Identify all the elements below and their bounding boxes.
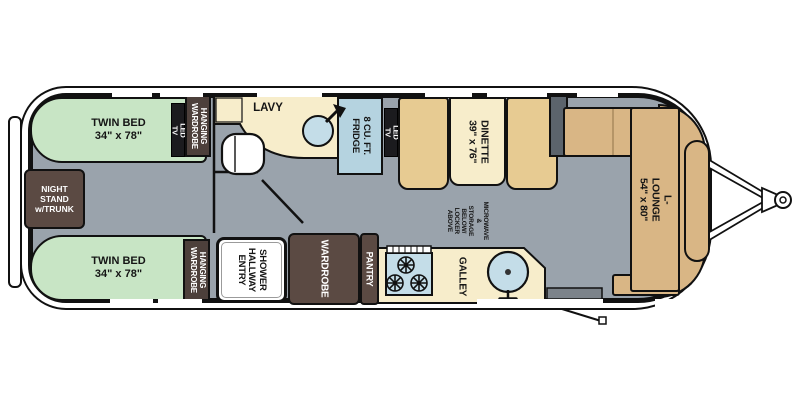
window-top-1	[112, 88, 152, 97]
galley-sink-icon	[488, 252, 528, 299]
entry-door-opening	[543, 299, 603, 308]
stove-burners-icon	[387, 246, 431, 291]
lavy-cabinet-seam	[216, 98, 242, 122]
window-bottom-4	[655, 299, 688, 308]
window-bottom-1	[110, 299, 153, 308]
window-top-6	[577, 88, 618, 97]
floor-plan: TWIN BED 34" x 78" TWIN BED 34" x 78" NI…	[0, 0, 800, 400]
window-top-4	[425, 88, 472, 97]
window-top-2	[160, 88, 203, 97]
window-bottom-2	[158, 299, 202, 308]
detail-vector-layer	[0, 0, 800, 400]
window-top-3	[257, 88, 322, 97]
window-top-5	[487, 88, 547, 97]
lavy-sink-icon	[303, 104, 346, 146]
window-bottom-3	[477, 299, 543, 308]
